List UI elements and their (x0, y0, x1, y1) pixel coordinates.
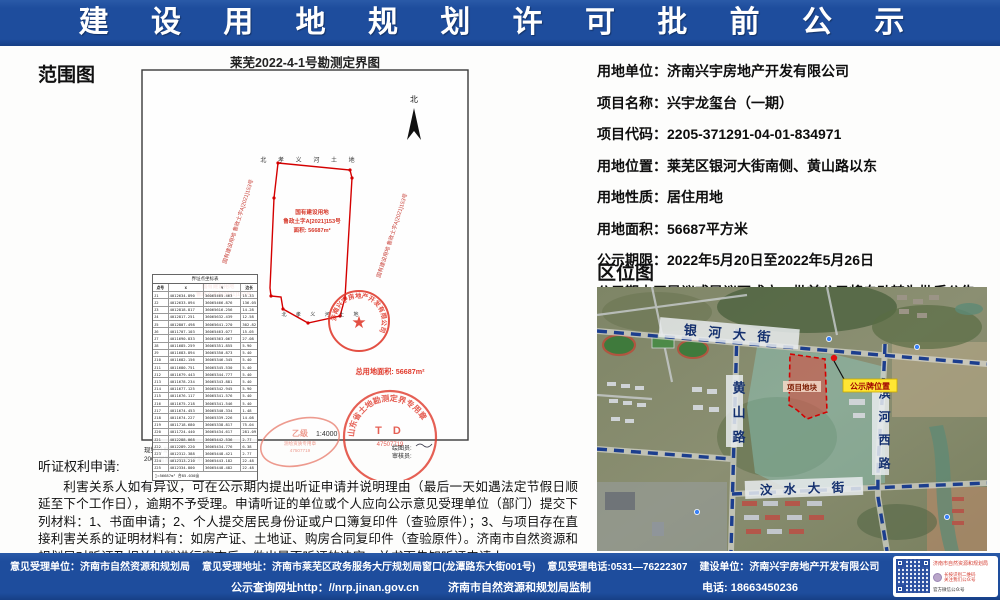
publicity-url: 公示查询网址http：//nrp.jinan.gov.cn (231, 579, 419, 595)
table-row: J21 4012288.068 36065442.536 2.77 (153, 436, 257, 443)
svg-text:测绘资质专用章: 测绘资质专用章 (284, 440, 317, 447)
satellite-map-drawing: 银 河 大 街 黄 山 路 滨 河 西 路 汶 水 大 街 (597, 287, 987, 551)
project-plot-label: 项目地块 (787, 382, 817, 392)
info-row: 用地面积：56687平方米 (597, 219, 995, 239)
project-info-rows: 用地单位：济南兴宇房地产开发有限公司 项目名称：兴宇龙玺台（一期） 项目代码：2… (597, 61, 995, 270)
info-label: 用地位置： (597, 158, 667, 174)
info-value: 兴宇龙玺台（一期） (667, 95, 793, 111)
table-row: J22 4012289.220 36065434.776 6.38 (153, 443, 257, 450)
qr-panel: 济南市自然资源和规划局 长按识别二维码关注我们公众号 官方微信公众号 (893, 556, 998, 597)
table-row: J11 4011680.751 36065345.530 5.40 (153, 364, 257, 371)
svg-text:★: ★ (351, 313, 366, 332)
table-row: J10 4011682.156 36065346.345 5.40 (153, 357, 257, 364)
table-row: J12 4011679.443 36065344.777 5.40 (153, 371, 257, 378)
table-row: J17 4011674.453 36065340.334 1.48 (153, 407, 257, 414)
qr-finder-pattern (922, 559, 930, 567)
table-row: J7 4011690.833 36065363.067 27.08 (153, 335, 257, 342)
info-row: 项目名称：兴宇龙玺台（一期） (597, 93, 995, 113)
wechat-account-logo (933, 573, 942, 582)
info-row: 用地位置：莱芜区银河大街南侧、黄山路以东 (597, 156, 995, 176)
info-label: 项目名称： (597, 95, 667, 111)
hearing-title: 听证权利申请: (38, 456, 578, 475)
header-band: 建 设 用 地 规 划 许 可 批 前 公 示 (0, 0, 1000, 46)
svg-text:T D: T D (375, 425, 405, 437)
info-value: 居住用地 (667, 189, 723, 205)
coordinate-table-header: 点号 X Y 边长 (153, 284, 257, 292)
qr-finder-pattern (896, 585, 904, 593)
info-label: 项目代码： (597, 126, 667, 142)
table-row: J9 4011683.894 36065350.873 5.40 (153, 350, 257, 357)
top-road-label: 北 孝 义 河 土 地 (260, 156, 359, 164)
info-value: 2022年5月20日至2022年5月26日 (667, 252, 874, 268)
coordinate-table: 界址点坐标表 点号 X Y 边长 J1 4012634.890 36065465… (152, 274, 258, 481)
table-row: J5 4012807.498 36065641.270 302.82 (153, 321, 257, 328)
footer-item: 意见受理地址：济南市莱芜区政务服务大厅规划局窗口(龙潭路东大街001号) (202, 558, 535, 573)
location-satellite-map: 银 河 大 街 黄 山 路 滨 河 西 路 汶 水 大 街 (597, 287, 987, 551)
survey-map-title: 莱芜2022-4-1号勘测定界图 (140, 52, 470, 68)
footer-item: 意见受理单位：济南市自然资源和规划局 (10, 558, 190, 573)
table-row: J15 4011676.117 36065341.576 5.40 (153, 393, 257, 400)
footer-phone: 电话: 18663450236 (702, 579, 798, 595)
footer-band: 意见受理单位：济南市自然资源和规划局意见受理地址：济南市莱芜区政务服务大厅规划局… (0, 553, 1000, 600)
svg-text:北: 北 (410, 95, 418, 104)
svg-text:绘图员:: 绘图员: (392, 444, 412, 452)
table-row: J3 4012818.817 36065616.256 14.28 (153, 307, 257, 314)
info-label: 用地面积： (597, 221, 667, 237)
footer-item: 建设单位：济南兴宇房地产开发有限公司 (699, 558, 879, 573)
table-row: J4 4012817.251 36065632.439 12.58 (153, 314, 257, 321)
parcel-polygon (269, 161, 353, 324)
qr-text-block: 济南市自然资源和规划局 长按识别二维码关注我们公众号 官方微信公众号 (933, 559, 995, 594)
coordinate-table-title: 界址点坐标表 (153, 275, 257, 284)
table-row: J19 4011718.680 36065338.817 75.04 (153, 422, 257, 429)
table-row: J6 4011707.103 36065463.077 15.05 (153, 328, 257, 335)
table-row: J20 4011724.440 36065434.617 281.09 (153, 429, 257, 436)
svg-text:鲁政土字A[2021]153号: 鲁政土字A[2021]153号 (283, 217, 341, 225)
producer-label: 济南市自然资源和规划局监制 (448, 579, 591, 595)
info-row: 用地单位：济南兴宇房地产开发有限公司 (597, 61, 995, 81)
total-area-label: 总用地面积: 56687m² (355, 367, 425, 376)
table-row: J13 4011678.234 36065343.881 5.40 (153, 378, 257, 385)
table-row: J14 4011677.125 36065342.945 5.90 (153, 386, 257, 393)
page-title: 建 设 用 地 规 划 许 可 批 前 公 示 (0, 0, 1000, 46)
info-label: 用地性质： (597, 189, 667, 205)
info-value: 2205-371291-04-01-834971 (667, 126, 841, 142)
info-row: 项目代码：2205-371291-04-01-834971 (597, 124, 995, 144)
qr-code-icon (896, 559, 930, 593)
table-row: J16 4011675.218 36065341.546 5.40 (153, 400, 257, 407)
location-map-section-label: 区位图 (597, 258, 654, 285)
info-label: 用地单位： (597, 63, 667, 79)
qr-tip: 长按识别二维码关注我们公众号 (944, 572, 976, 583)
info-row: 公示期限：2022年5月20日至2022年5月26日 (597, 250, 995, 270)
table-row: J2 4012633.094 36065466.876 136.05 (153, 299, 257, 306)
qr-finder-pattern (896, 559, 904, 567)
notice-page: 建 设 用 地 规 划 许 可 批 前 公 示 范围图 莱芜2022-4-1号勘… (0, 0, 1000, 600)
info-value: 济南兴宇房地产开发有限公司 (667, 63, 849, 79)
table-row: J18 4011674.227 36065339.226 14.08 (153, 414, 257, 421)
scope-map-section-label: 范围图 (38, 60, 95, 87)
hearing-rights-section: 听证权利申请: 利害关系人如有异议，可在公示期内提出听证申请并说明理由（最后一天… (38, 456, 578, 566)
notice-board-label: 公示牌位置 (850, 381, 890, 391)
project-info-panel: 用地单位：济南兴宇房地产开发有限公司 项目名称：兴宇龙玺台（一期） 项目代码：2… (597, 61, 995, 302)
survey-map: 莱芜2022-4-1号勘测定界图 北 北 孝 义 河 土 地 (140, 52, 470, 480)
svg-text:47507719: 47507719 (290, 448, 311, 453)
table-row: J8 4011685.259 36065351.855 5.90 (153, 343, 257, 350)
bottom-road-label: 北 孝 义 河 土 地 (282, 311, 363, 318)
qr-bureau-name: 济南市自然资源和规划局 (933, 560, 995, 567)
info-value: 56687平方米 (667, 221, 748, 237)
info-value: 莱芜区银河大街南侧、黄山路以东 (667, 158, 877, 174)
qr-caption: 官方微信公众号 (933, 587, 995, 593)
footer-item: 意见受理电话:0531—76222307 (547, 558, 687, 573)
svg-text:面积: 56687m²: 面积: 56687m² (294, 226, 331, 234)
road-label-east: 滨 河 西 路 (877, 386, 891, 473)
road-label-west: 黄 山 路 (731, 380, 746, 447)
road-label-south: 汶 水 大 街 (760, 479, 849, 497)
svg-text:乙级: 乙级 (292, 428, 309, 438)
svg-text:国有建设用地: 国有建设用地 (295, 208, 329, 216)
info-row: 用地性质：居住用地 (597, 187, 995, 207)
coordinate-table-body: J1 4012634.890 36065465.463 15.33 J2 401… (153, 292, 257, 472)
table-row: J1 4012634.890 36065465.463 15.33 (153, 292, 257, 299)
footer-line1: 意见受理单位：济南市自然资源和规划局意见受理地址：济南市莱芜区政务服务大厅规划局… (10, 558, 880, 573)
map-scale-label: 1:4000 (316, 431, 338, 438)
